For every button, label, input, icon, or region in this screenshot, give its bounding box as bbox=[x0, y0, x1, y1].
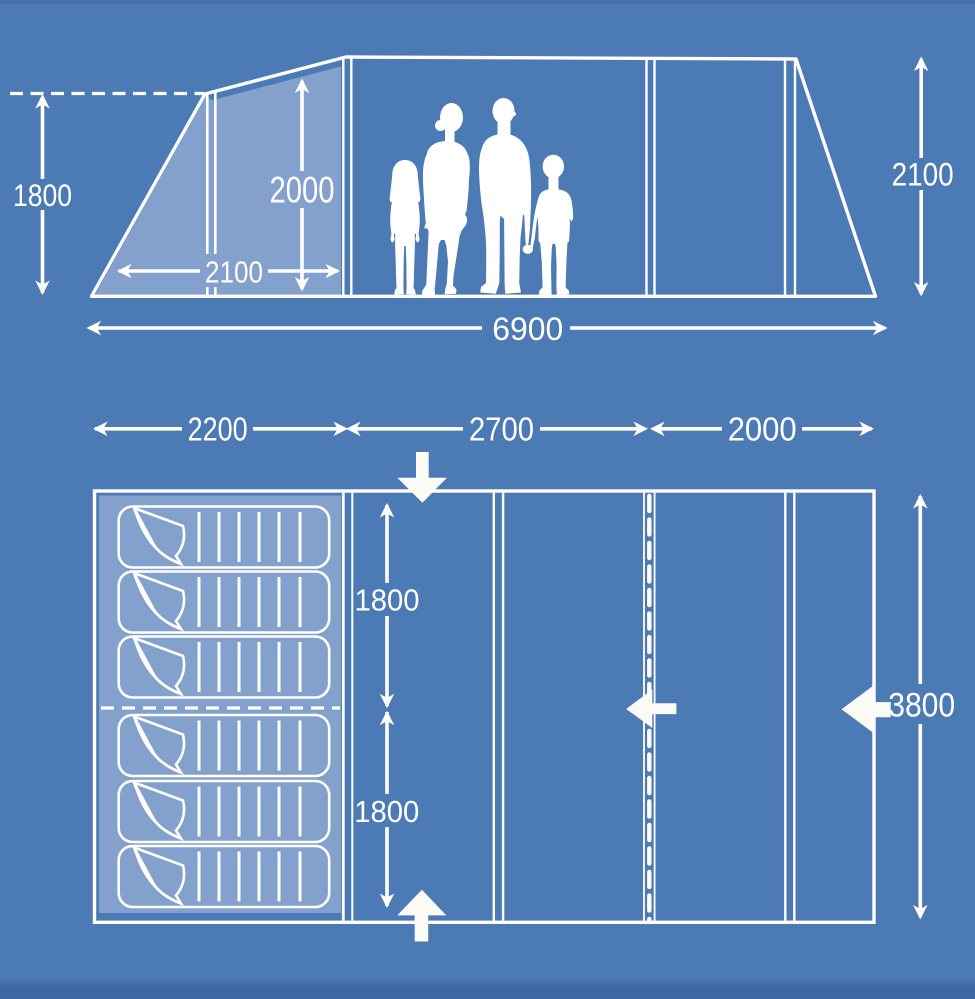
svg-text:2100: 2100 bbox=[205, 254, 263, 289]
svg-text:1800: 1800 bbox=[13, 177, 72, 213]
svg-text:1800: 1800 bbox=[354, 795, 419, 829]
svg-text:2000: 2000 bbox=[270, 170, 335, 211]
svg-text:2000: 2000 bbox=[728, 410, 797, 447]
svg-text:3800: 3800 bbox=[888, 687, 955, 725]
svg-text:2700: 2700 bbox=[469, 410, 534, 447]
svg-text:1800: 1800 bbox=[355, 584, 420, 618]
svg-text:2200: 2200 bbox=[188, 410, 248, 447]
svg-text:6900: 6900 bbox=[492, 311, 563, 347]
svg-text:2100: 2100 bbox=[892, 157, 954, 193]
